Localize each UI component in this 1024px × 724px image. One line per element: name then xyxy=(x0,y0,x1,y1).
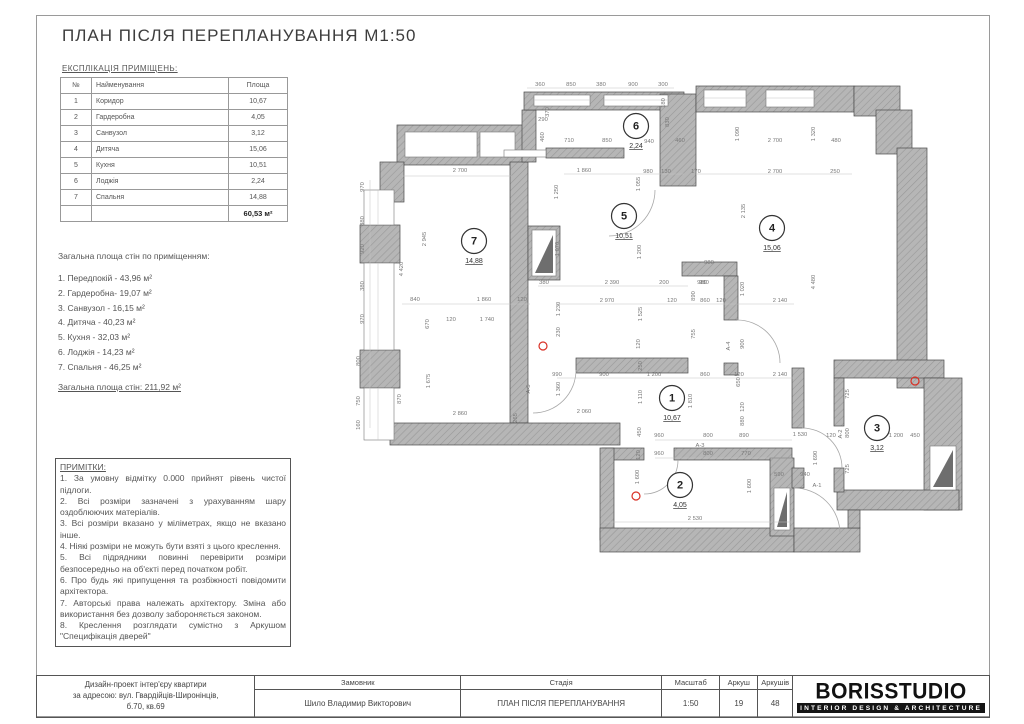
dimension-label: 970 xyxy=(360,182,366,192)
table-cell: 6 xyxy=(61,174,92,190)
dimension-label: 960 xyxy=(654,451,664,457)
explication-heading: ЕКСПЛІКАЦІЯ ПРИМІЩЕНЬ: xyxy=(62,64,178,73)
dimension-label: 1 860 xyxy=(477,297,492,303)
dimension-label: 990 xyxy=(552,372,562,378)
room-area: 15,06 xyxy=(763,245,781,252)
dimension-label: 460 xyxy=(675,138,685,144)
dimension-label: 725 xyxy=(845,389,851,399)
drawing-sheet: ПЛАН ПІСЛЯ ПЕРЕПЛАНУВАННЯ М1:50 ЕКСПЛІКА… xyxy=(0,0,1024,724)
sheets-value: 48 xyxy=(758,690,792,717)
dimension-label: 900 xyxy=(599,372,609,378)
note-item: 6. Про будь які припущення та розбіжност… xyxy=(60,575,286,598)
note-item: 7. Авторські права належать архітектору.… xyxy=(60,598,286,621)
wall-niche xyxy=(405,132,477,157)
room-number: 5 xyxy=(621,211,627,223)
dimension-label: 360 xyxy=(535,82,545,88)
table-row: 5Кухня10,51 xyxy=(61,158,288,174)
wall xyxy=(837,490,959,510)
table-row: 7Спальня14,88 xyxy=(61,190,288,206)
project-line: Дизайн-проект інтер'єру квартири xyxy=(37,680,254,691)
dimension-label: 2 390 xyxy=(605,280,620,286)
wall-areas-list: 1. Передпокій - 43,96 м²2. Гардеробна- 1… xyxy=(58,271,233,375)
wall-areas-total: Загальна площа стін: 211,92 м² xyxy=(58,382,181,392)
dimension-label: 1 230 xyxy=(556,302,562,317)
dimension-label: А-2 xyxy=(838,429,844,438)
wall xyxy=(834,378,844,426)
dimension-label: 200 xyxy=(659,280,669,286)
door-swing xyxy=(794,488,840,534)
dimension-label: 1 525 xyxy=(638,307,644,322)
wall xyxy=(834,360,944,378)
dimension-label: А-4 xyxy=(726,341,732,351)
dimension-label: 1 200 xyxy=(637,245,643,260)
table-cell: 2,24 xyxy=(229,174,288,190)
dimension-label: 380 xyxy=(360,216,366,226)
wall-areas-heading: Загальна площа стін по приміщенням: xyxy=(58,250,233,263)
wall-area-item: 2. Гардеробна- 19,07 м² xyxy=(58,286,233,301)
room-area: 4,05 xyxy=(673,502,687,509)
dimension-label: 1 740 xyxy=(480,317,495,323)
dimension-label: 120 xyxy=(740,402,746,412)
wall-area-item: 6. Лоджія - 14,23 м² xyxy=(58,345,233,360)
dimension-label: 1 320 xyxy=(811,127,817,142)
note-item: 8. Креслення розглядати сумістно з Аркуш… xyxy=(60,620,286,643)
dimension-label: 2 860 xyxy=(453,411,468,417)
table-cell: Найменування xyxy=(92,78,229,94)
dimension-label: 890 xyxy=(691,291,697,301)
dimension-label: 450 xyxy=(910,433,920,439)
dimension-label: 380 xyxy=(596,82,606,88)
dimension-label: 1 810 xyxy=(688,394,694,409)
wall xyxy=(834,468,844,492)
client-label: Замовник xyxy=(255,676,460,690)
wall-area-item: 1. Передпокій - 43,96 м² xyxy=(58,271,233,286)
notes-heading: ПРИМІТКИ: xyxy=(60,462,286,473)
dimension-label: 850 xyxy=(566,82,576,88)
wall xyxy=(792,368,804,428)
dimension-label: 230 xyxy=(556,327,562,337)
dimension-label: А-1 xyxy=(812,483,821,489)
wall xyxy=(390,423,620,445)
table-cell: 3 xyxy=(61,126,92,142)
stage-label: Стадія xyxy=(461,676,661,690)
table-cell: 10,67 xyxy=(229,94,288,110)
table-cell: № xyxy=(61,78,92,94)
dimension-label: 1 600 xyxy=(747,479,753,494)
red-circle-marker xyxy=(632,492,640,500)
table-cell: Спальня xyxy=(92,190,229,206)
note-item: 1. За умовну відмітку 0.000 прийнят ріве… xyxy=(60,473,286,496)
table-cell: 3,12 xyxy=(229,126,288,142)
dimension-label: 1 055 xyxy=(636,177,642,192)
table-cell: 15,06 xyxy=(229,142,288,158)
table-cell: Кухня xyxy=(92,158,229,174)
wall xyxy=(576,358,688,373)
table-cell: Гардеробна xyxy=(92,110,229,126)
note-item: 5. Всі підрядники повинні перевірити роз… xyxy=(60,552,286,575)
dimension-label: 2 060 xyxy=(577,409,592,415)
table-cell: 1 xyxy=(61,94,92,110)
dimension-label: 800 xyxy=(703,451,713,457)
dimension-label: 1 110 xyxy=(638,390,644,404)
dimension-label: 970 xyxy=(360,314,366,324)
dimension-label: 480 xyxy=(831,138,841,144)
table-row: 2Гардеробна4,05 xyxy=(61,110,288,126)
dimension-label: 1 020 xyxy=(740,282,746,297)
note-item: 2. Всі розміри зазначені з урахуванням ш… xyxy=(60,496,286,519)
dimension-label: 250 xyxy=(638,361,644,371)
dimension-label: 1 070 xyxy=(555,242,561,257)
floor-plan-svg: 3608503809003002903704607108509404601808… xyxy=(352,80,992,560)
wall-niche xyxy=(504,150,546,157)
room-number: 2 xyxy=(677,480,683,492)
dimension-label: 4 420 xyxy=(399,262,405,277)
room-number: 7 xyxy=(471,236,477,248)
dimension-label: 870 xyxy=(397,394,403,404)
dimension-label: 980 xyxy=(699,280,709,286)
wall-area-item: 3. Санвузол - 16,15 м² xyxy=(58,301,233,316)
dimension-label: 2 135 xyxy=(741,204,747,219)
room-number: 3 xyxy=(874,423,880,435)
table-cell: Лоджія xyxy=(92,174,229,190)
table-cell: 2 xyxy=(61,110,92,126)
table-row: №НайменуванняПлоща xyxy=(61,78,288,94)
dimension-label: 265 xyxy=(513,413,519,423)
wall xyxy=(792,468,804,488)
wall xyxy=(360,225,400,263)
dimension-label: 850 xyxy=(602,138,612,144)
dimension-label: 1 200 xyxy=(889,433,904,439)
sheets-cell: Аркушів 48 xyxy=(758,676,793,717)
dimension-label: 1 200 xyxy=(647,372,662,378)
dimension-label: 900 xyxy=(740,339,746,349)
wall xyxy=(600,528,794,552)
dimension-label: 880 xyxy=(740,416,746,426)
dimension-label: 1 250 xyxy=(554,185,560,200)
wall xyxy=(724,276,738,320)
notes-list: 1. За умовну відмітку 0.000 прийнят ріве… xyxy=(60,473,286,642)
dimension-label: 120 xyxy=(734,372,744,378)
project-line: б.70, кв.69 xyxy=(37,702,254,713)
dimension-label: 800 xyxy=(703,433,713,439)
table-cell xyxy=(92,206,229,222)
dimension-label: 4 480 xyxy=(811,275,817,290)
dimension-label: 450 xyxy=(637,427,643,437)
stage-value: ПЛАН ПІСЛЯ ПЕРЕПЛАНУВАННЯ xyxy=(461,690,661,717)
dimension-label: 590 xyxy=(774,472,784,478)
logo-wordmark: BORISSTUDIO xyxy=(815,680,966,702)
dimension-label: 1 600 xyxy=(635,470,641,485)
dimension-label: 170 xyxy=(691,169,701,175)
dimension-label: 2 140 xyxy=(773,298,788,304)
room-number: 6 xyxy=(633,121,639,133)
dimension-label: 2 700 xyxy=(453,168,468,174)
table-cell: Санвузол xyxy=(92,126,229,142)
dimension-label: 120 xyxy=(517,297,527,303)
wall xyxy=(510,162,528,423)
dimension-label: 890 xyxy=(739,433,749,439)
dimension-label: 1 860 xyxy=(577,168,592,174)
scale-cell: Масштаб 1:50 xyxy=(662,676,720,717)
dimension-label: 800 xyxy=(356,356,362,366)
dimension-label: 800 xyxy=(845,428,851,438)
dimension-label: 1 090 xyxy=(735,127,741,142)
table-cell xyxy=(61,206,92,222)
room-number: 1 xyxy=(669,393,675,405)
dimension-label: 750 xyxy=(356,396,362,406)
table-cell: 60,53 м² xyxy=(229,206,288,222)
wall xyxy=(600,448,614,540)
room-number: 4 xyxy=(769,223,776,235)
project-line: за адресою: вул. Гвардійців-Широнінців, xyxy=(37,691,254,702)
dimension-label: 940 xyxy=(800,472,810,478)
table-cell: 10,51 xyxy=(229,158,288,174)
dimension-label: 180 xyxy=(661,98,667,108)
room-area: 10,67 xyxy=(663,415,681,422)
room-area: 2,24 xyxy=(629,143,643,150)
page-title: ПЛАН ПІСЛЯ ПЕРЕПЛАНУВАННЯ М1:50 xyxy=(62,26,416,46)
table-cell: Площа xyxy=(229,78,288,94)
dimension-label: 2 945 xyxy=(422,232,428,247)
dimension-label: 980 xyxy=(643,169,653,175)
wall-niche xyxy=(364,190,394,225)
sheet-value: 19 xyxy=(720,690,757,717)
studio-logo: BORISSTUDIO INTERIOR DESIGN & ARCHITECTU… xyxy=(793,676,989,717)
dimension-label: 940 xyxy=(644,139,654,145)
wall-niche xyxy=(766,90,814,107)
door-swing xyxy=(802,428,842,468)
dimension-label: 1 675 xyxy=(426,374,432,389)
table-cell: 7 xyxy=(61,190,92,206)
client-value: Шило Владимир Викторович xyxy=(255,690,460,717)
dimension-label: 1 690 xyxy=(813,451,819,466)
table-cell: Дитяча xyxy=(92,142,229,158)
dimension-label: 120 xyxy=(636,339,642,349)
dimension-label: 650 xyxy=(736,377,742,387)
dimension-label: 2 970 xyxy=(600,298,615,304)
dimension-label: 830 xyxy=(665,117,671,127)
wall-niche xyxy=(534,95,590,106)
dimension-label: 120 xyxy=(446,317,456,323)
table-cell: 4,05 xyxy=(229,110,288,126)
wall xyxy=(848,510,860,528)
stage-cell: Стадія ПЛАН ПІСЛЯ ПЕРЕПЛАНУВАННЯ xyxy=(461,676,662,717)
wall xyxy=(876,110,912,154)
dimension-label: 770 xyxy=(741,451,751,457)
wall xyxy=(360,350,400,388)
wall xyxy=(897,148,927,388)
wall-niche xyxy=(604,95,668,106)
sheets-label: Аркушів xyxy=(758,676,792,690)
dimension-label: 120 xyxy=(716,298,726,304)
room-area: 10,51 xyxy=(615,233,633,240)
note-item: 4. Ніякі розміри не можуть бути взяті з … xyxy=(60,541,286,552)
dimension-label: 2 700 xyxy=(768,169,783,175)
wall-area-item: 5. Кухня - 32,03 м² xyxy=(58,330,233,345)
dimension-label: 370 xyxy=(545,107,551,117)
wall-niche xyxy=(704,90,746,107)
wall xyxy=(794,528,860,552)
dimension-label: 380 xyxy=(539,280,549,286)
floor-plan: 3608503809003002903704607108509404601808… xyxy=(352,80,992,560)
project-description: Дизайн-проект інтер'єру квартири за адре… xyxy=(37,676,255,717)
dimension-label: 960 xyxy=(654,433,664,439)
dimension-label: 120 xyxy=(667,298,677,304)
dimension-label: 1 360 xyxy=(556,382,562,397)
red-circle-marker xyxy=(539,342,547,350)
dimension-label: 1 530 xyxy=(793,432,808,438)
room-area: 3,12 xyxy=(870,445,884,452)
dimension-label: 120 xyxy=(826,433,836,439)
title-block: Дизайн-проект інтер'єру квартири за адре… xyxy=(36,675,990,718)
wall-niche xyxy=(364,388,394,440)
wall-areas-block: Загальна площа стін по приміщенням: 1. П… xyxy=(58,250,233,375)
dimension-label: 2 140 xyxy=(773,372,788,378)
dimension-label: 2 700 xyxy=(768,138,783,144)
table-row: 6Лоджія2,24 xyxy=(61,174,288,190)
dimension-label: 250 xyxy=(830,169,840,175)
wall xyxy=(546,148,624,158)
scale-label: Масштаб xyxy=(662,676,719,690)
table-cell: Коридор xyxy=(92,94,229,110)
dimension-label: 300 xyxy=(658,82,668,88)
wall-area-item: 4. Дитяча - 40,23 м² xyxy=(58,315,233,330)
wall-area-item: 7. Спальня - 46,25 м² xyxy=(58,360,233,375)
notes-block: ПРИМІТКИ: 1. За умовну відмітку 0.000 пр… xyxy=(55,458,291,647)
sheet-label: Аркуш xyxy=(720,676,757,690)
dimension-label: 840 xyxy=(410,297,420,303)
note-item: 3. Всі розміри вказано у міліметрах, якщ… xyxy=(60,518,286,541)
scale-value: 1:50 xyxy=(662,690,719,717)
table-cell: 14,88 xyxy=(229,190,288,206)
dimension-label: 725 xyxy=(845,464,851,474)
dimension-label: 460 xyxy=(540,132,546,142)
table-cell: 5 xyxy=(61,158,92,174)
room-area: 14,88 xyxy=(465,258,483,265)
dimension-label: 120 xyxy=(636,450,642,460)
dimension-label: А-5 xyxy=(526,384,532,393)
table-row: 3Санвузол3,12 xyxy=(61,126,288,142)
table-row: 1Коридор10,67 xyxy=(61,94,288,110)
table-row: 60,53 м² xyxy=(61,206,288,222)
dimension-label: 980 xyxy=(704,260,714,266)
dimension-label: 900 xyxy=(628,82,638,88)
sheet-cell: Аркуш 19 xyxy=(720,676,758,717)
dimension-label: 710 xyxy=(564,138,574,144)
dimension-label: 290 xyxy=(538,117,548,123)
dimension-label: 130 xyxy=(661,169,671,175)
dimension-label: 670 xyxy=(425,319,431,329)
client-cell: Замовник Шило Владимир Викторович xyxy=(255,676,461,717)
dimension-label: 860 xyxy=(700,298,710,304)
dimension-label: 755 xyxy=(691,329,697,339)
explication-table: №НайменуванняПлоща1Коридор10,672Гардероб… xyxy=(60,77,288,222)
dimension-label: А-3 xyxy=(695,443,704,449)
table-row: 4Дитяча15,06 xyxy=(61,142,288,158)
logo-tagline: INTERIOR DESIGN & ARCHITECTURE xyxy=(797,703,985,713)
table-cell: 4 xyxy=(61,142,92,158)
dimension-label: 860 xyxy=(700,372,710,378)
dimension-label: 2 530 xyxy=(688,516,703,522)
dimension-label: 160 xyxy=(356,420,362,430)
dimension-label: 920 xyxy=(360,244,366,254)
wall-niche xyxy=(364,263,394,350)
dimension-label: 380 xyxy=(360,281,366,291)
